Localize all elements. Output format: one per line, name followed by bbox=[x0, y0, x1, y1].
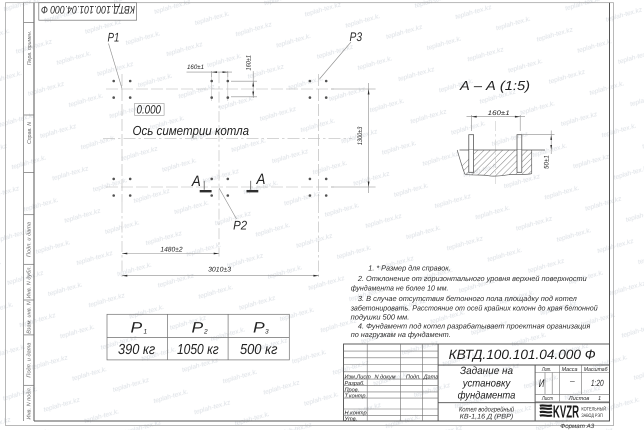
svg-text:3. В случае отсутствия бетонно: 3. В случае отсутствия бетонного пола пл… bbox=[358, 294, 578, 303]
svg-text:Ось симетрии котла: Ось симетрии котла bbox=[133, 123, 250, 138]
svg-text:Р: Р bbox=[131, 319, 143, 336]
svg-text:Т.контр.: Т.контр. bbox=[345, 394, 368, 400]
svg-text:А – А (1:5): А – А (1:5) bbox=[459, 78, 530, 93]
svg-text:подушки 500 мм.: подушки 500 мм. bbox=[351, 312, 410, 321]
svg-text:И: И bbox=[539, 378, 545, 390]
svg-text:500 кг: 500 кг bbox=[240, 342, 277, 358]
svg-text:А: А bbox=[256, 171, 266, 188]
svg-text:Р3: Р3 bbox=[350, 30, 363, 44]
svg-text:2. Отклонение от горизонтально: 2. Отклонение от горизонтального уровня … bbox=[357, 274, 587, 283]
svg-text:KVZR: KVZR bbox=[553, 402, 579, 422]
svg-text:Подп.: Подп. bbox=[406, 373, 421, 380]
svg-text:N докум: N докум bbox=[375, 373, 396, 380]
svg-text:Дата: Дата bbox=[423, 374, 439, 380]
svg-text:3010±3: 3010±3 bbox=[208, 267, 231, 274]
svg-text:50±1: 50±1 bbox=[543, 155, 550, 169]
svg-text:Котел водогрейный: Котел водогрейный bbox=[459, 405, 514, 413]
svg-text:Масштаб: Масштаб bbox=[584, 366, 608, 373]
svg-text:1050 кг: 1050 кг bbox=[177, 342, 219, 358]
svg-text:фундамента: фундамента bbox=[458, 390, 516, 402]
svg-text:Пров.: Пров. bbox=[345, 387, 360, 393]
svg-text:0.000: 0.000 bbox=[137, 103, 162, 117]
svg-text:КВТД.100.101.04.000 Ф: КВТД.100.101.04.000 Ф bbox=[41, 3, 135, 15]
svg-text:Р: Р bbox=[253, 319, 265, 336]
svg-text:Справ. N: Справ. N bbox=[27, 121, 33, 144]
svg-text:забетонировать. Расстояние от: забетонировать. Расстояние от осей крайн… bbox=[350, 303, 598, 312]
svg-text:3: 3 bbox=[265, 329, 269, 336]
svg-text:КВТД.100.101.04.000 Ф: КВТД.100.101.04.000 Ф bbox=[449, 347, 596, 362]
svg-text:390 кг: 390 кг bbox=[118, 342, 155, 358]
svg-text:1: 1 bbox=[144, 329, 148, 336]
svg-text:Разраб.: Разраб. bbox=[345, 380, 365, 387]
svg-text:фундамента не более 10 мм.: фундамента не более 10 мм. bbox=[351, 284, 449, 293]
svg-text:Инв. N дубл.: Инв. N дубл. bbox=[26, 266, 33, 298]
svg-text:1: 1 bbox=[598, 396, 601, 402]
svg-text:установку: установку bbox=[462, 377, 511, 389]
svg-text:Р1: Р1 bbox=[108, 31, 120, 45]
svg-text:по нагрузкам на фундамент.: по нагрузкам на фундамент. bbox=[351, 330, 451, 339]
svg-text:Утв.: Утв. bbox=[344, 416, 358, 422]
svg-text:Лист: Лист bbox=[541, 396, 553, 402]
svg-text:ЗАВОД РЭП: ЗАВОД РЭП bbox=[581, 413, 603, 419]
svg-text:Формат А3: Формат А3 bbox=[560, 423, 594, 430]
svg-text:160±1: 160±1 bbox=[488, 110, 510, 117]
svg-text:Лит.: Лит. bbox=[541, 367, 551, 373]
svg-text:Задание на: Задание на bbox=[460, 365, 513, 377]
svg-text:2: 2 bbox=[203, 329, 208, 336]
svg-text:1480±2: 1480±2 bbox=[160, 246, 182, 253]
svg-text:КВ-1,16 Д (РВР): КВ-1,16 Д (РВР) bbox=[460, 414, 514, 421]
svg-text:Р: Р bbox=[192, 319, 204, 336]
svg-text:Инв. N подл.: Инв. N подл. bbox=[26, 387, 33, 420]
svg-text:1:20: 1:20 bbox=[591, 378, 604, 388]
svg-text:1. * Размер для справок.: 1. * Размер для справок. bbox=[368, 263, 450, 272]
svg-text:КОТЕЛЬНЫЙ: КОТЕЛЬНЫЙ bbox=[581, 406, 606, 413]
svg-text:Масса: Масса bbox=[562, 367, 578, 373]
svg-text:–: – bbox=[569, 376, 575, 386]
svg-text:160±1: 160±1 bbox=[246, 55, 253, 71]
svg-text:Подп. и дата: Подп. и дата bbox=[26, 222, 33, 257]
svg-text:Р2: Р2 bbox=[233, 218, 247, 232]
svg-text:160±1: 160±1 bbox=[187, 64, 204, 71]
svg-text:1300±3: 1300±3 bbox=[357, 126, 364, 145]
svg-text:Перв. примен.: Перв. примен. bbox=[27, 31, 33, 65]
svg-text:Изм.Лист: Изм.Лист bbox=[345, 374, 372, 380]
svg-text:Взам. инв. N: Взам. инв. N bbox=[27, 300, 33, 334]
svg-text:Подп. и дата: Подп. и дата bbox=[26, 343, 33, 378]
svg-text:А: А bbox=[191, 173, 201, 190]
